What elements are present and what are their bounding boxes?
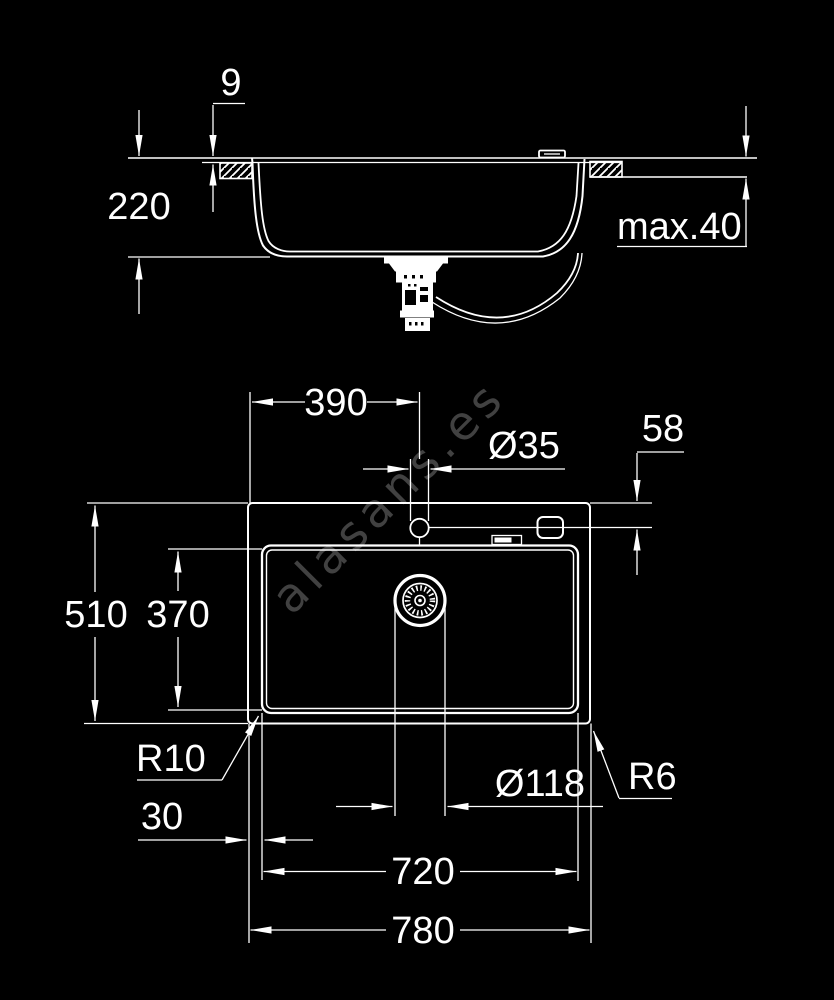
dim-bowl-width-label: 720: [391, 851, 454, 893]
dim-tap-offset: 390: [252, 382, 418, 424]
dim-overall-depth-label: 220: [107, 186, 170, 228]
dim-overall-depth: 220: [107, 110, 170, 314]
dim-outer-depth: 510: [64, 506, 127, 722]
dim-worktop-thickness-label: max.40: [617, 206, 742, 248]
dim-tap-offset-label: 390: [304, 382, 367, 424]
overflow-hose-inner: [432, 253, 582, 323]
bowl-outer-profile: [252, 158, 585, 257]
callout-outer-corner-radius: R6: [594, 731, 677, 799]
dim-tap-hole-diameter-label: Ø35: [488, 425, 560, 467]
tap-hole: [410, 519, 428, 537]
dim-bowl-depth-label: 370: [146, 594, 209, 636]
drain-body: [396, 272, 436, 283]
callout-r10-label: R10: [136, 738, 206, 780]
dim-drain-diameter-label: Ø118: [495, 763, 585, 805]
dim-rim-height: 9: [213, 62, 245, 212]
overflow-hose-outer: [436, 253, 578, 318]
drain-taper: [389, 264, 443, 272]
dim-bowl-width: 720: [264, 851, 577, 893]
drain-flange: [384, 257, 448, 264]
callout-bowl-corner-radius: R10: [136, 716, 259, 780]
dim-tap-edge-offset: 58: [637, 408, 684, 575]
dim-outer-depth-label: 510: [64, 594, 127, 636]
dim-drain-diameter: Ø118: [336, 763, 603, 807]
worktop-hatch-left: [220, 163, 252, 179]
dim-overall-width-label: 780: [391, 910, 454, 952]
dim-left-rim-width-label: 30: [141, 796, 183, 838]
side-section-view: 220 9 max.40: [107, 62, 757, 331]
watermark-text: alasans.es: [261, 369, 517, 625]
overflow-slot-detail: [495, 538, 512, 543]
dim-overall-width: 780: [251, 910, 590, 952]
sink-technical-drawing-page: alasans.es: [0, 0, 834, 1000]
bowl-inner-profile: [259, 163, 579, 252]
top-plan-view: 390 Ø35 58 510 370 R10: [64, 382, 684, 952]
dim-rim-height-label: 9: [220, 62, 241, 104]
worktop-hatch-right: [590, 162, 622, 178]
callout-r6-label: R6: [628, 756, 677, 798]
drain-nut: [400, 311, 434, 318]
drain-trap-illustration: [384, 257, 448, 332]
dim-left-rim-width: 30: [138, 796, 313, 840]
sink-dimension-drawing: alasans.es: [0, 0, 834, 1000]
drain-strainer: [395, 576, 445, 626]
dim-bowl-depth: 370: [146, 552, 209, 708]
dim-tap-edge-offset-label: 58: [642, 408, 684, 450]
